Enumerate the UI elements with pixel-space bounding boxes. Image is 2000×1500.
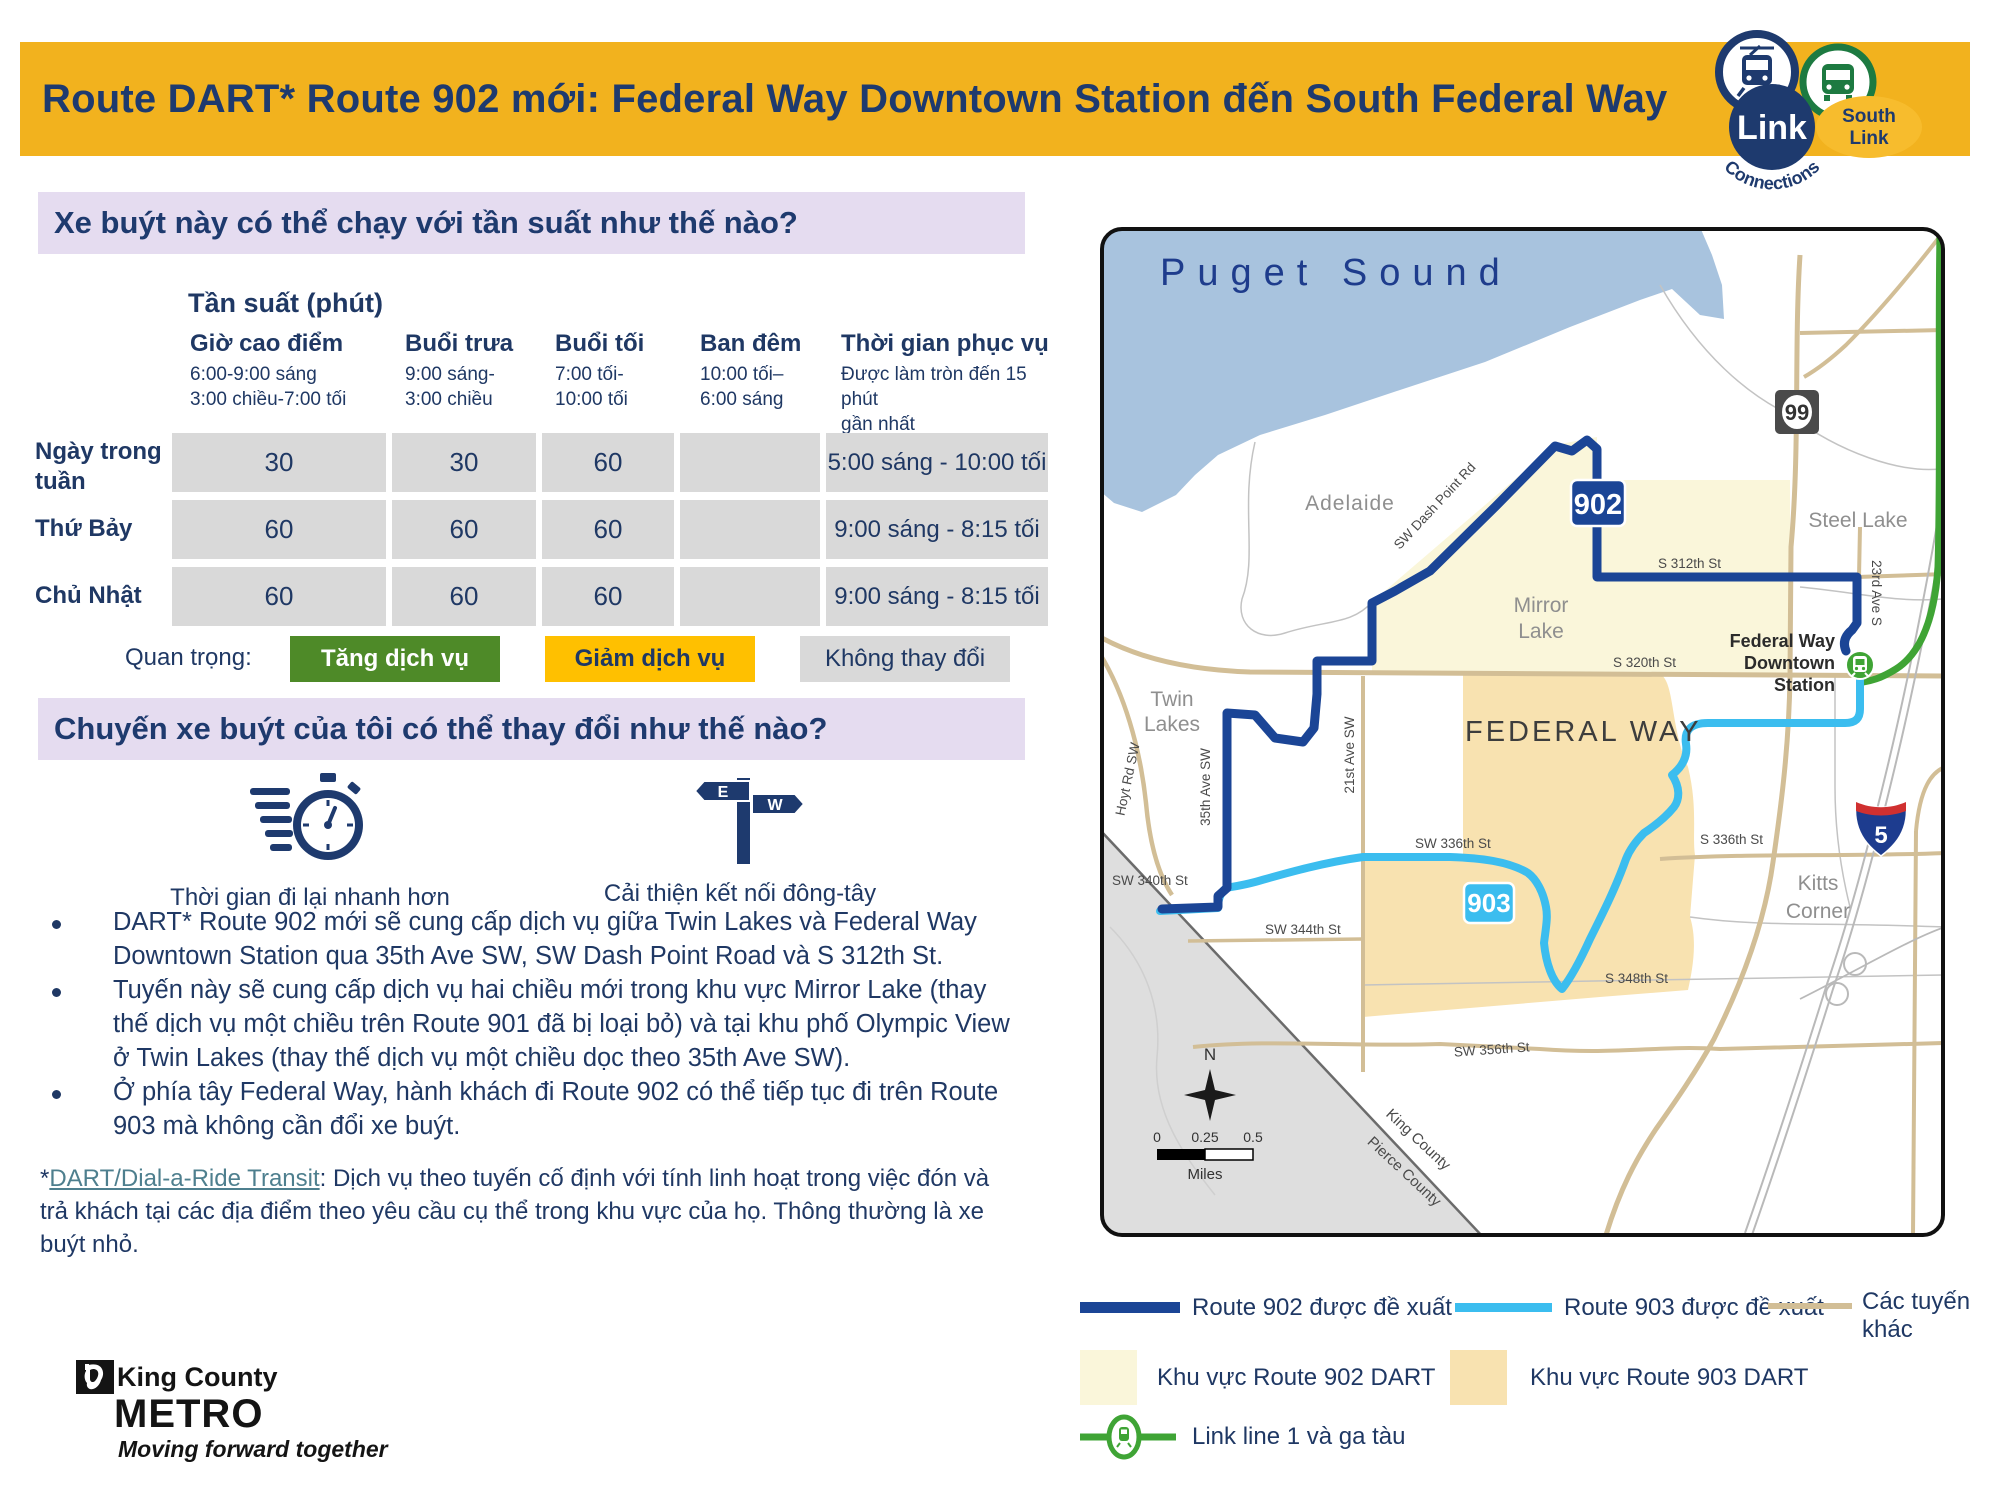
place-federal-way: FEDERAL WAY [1465, 716, 1702, 748]
bullet-item: Ở phía tây Federal Way, hành khách đi Ro… [113, 1075, 1018, 1143]
col-service-span: Thời gian phục vụ Được làm tròn đến 15 p… [841, 330, 1056, 437]
table-title: Tần suất (phút) [188, 288, 383, 319]
badge-service-increase: Tăng dịch vụ [290, 636, 500, 682]
svg-text:Station: Station [1774, 675, 1835, 695]
link-badge: Link [1729, 84, 1815, 170]
legend-other-routes-swatch [1768, 1303, 1852, 1309]
page-title: Route DART* Route 902 mới: Federal Way D… [20, 77, 1667, 122]
svg-text:35th Ave SW: 35th Ave SW [1198, 748, 1213, 826]
table-cell: 60 [542, 500, 674, 559]
svg-text:Lakes: Lakes [1144, 713, 1200, 736]
row-label-saturday: Thứ Bảy [35, 515, 185, 543]
badge-no-change: Không thay đổi [800, 636, 1010, 682]
stopwatch-icon [235, 770, 380, 870]
col-peak-sub: 6:00-9:00 sáng 3:00 chiều-7:00 tối [190, 362, 402, 412]
link-connections-logo: South Link Link Connections [1660, 8, 1980, 218]
col-midday: Buổi trưa 9:00 sáng- 3:00 chiều [405, 330, 550, 412]
bullet-dot [52, 920, 61, 929]
legend-route902-swatch [1080, 1302, 1180, 1313]
changes-section-heading: Chuyến xe buýt của tôi có thể thay đổi n… [38, 698, 1025, 760]
legend-other-routes-label: Các tuyến khác [1862, 1288, 2000, 1344]
svg-text:S 312th St: S 312th St [1658, 556, 1721, 571]
svg-text:SW 344th St: SW 344th St [1265, 922, 1341, 937]
frequency-section-heading: Xe buýt này có thể chạy với tần suất như… [38, 192, 1025, 254]
legend-dart902-label: Khu vực Route 902 DART [1157, 1364, 1435, 1392]
south-link-line2: Link [1849, 128, 1888, 149]
south-link-line1: South [1842, 106, 1896, 127]
svg-text:E: E [718, 784, 729, 801]
svg-text:0.25: 0.25 [1191, 1129, 1218, 1145]
svg-text:S 348th St: S 348th St [1605, 971, 1668, 986]
table-cell: 30 [172, 433, 386, 492]
dart-footnote: *DART/Dial-a-Ride Transit: Dịch vụ theo … [40, 1162, 1015, 1261]
table-cell: 30 [392, 433, 536, 492]
svg-text:0.5: 0.5 [1243, 1129, 1263, 1145]
svg-text:Corner: Corner [1786, 900, 1850, 923]
col-night-sub: 10:00 tối– 6:00 sáng [700, 362, 835, 412]
changes-heading-text: Chuyến xe buýt của tôi có thể thay đổi n… [38, 711, 827, 747]
col-evening: Buổi tối 7:00 tối- 10:00 tối [555, 330, 685, 412]
flyer-page: Route DART* Route 902 mới: Federal Way D… [0, 0, 2000, 1500]
sr99-shield: 99 [1775, 390, 1819, 434]
legend-link-station-icon [1078, 1408, 1178, 1466]
importance-label: Quan trọng: [125, 644, 252, 672]
table-cell: 60 [172, 500, 386, 559]
table-cell [680, 500, 820, 559]
route-902-badge: 902 [1571, 480, 1625, 526]
svg-text:23rd Ave S: 23rd Ave S [1869, 560, 1884, 626]
frequency-heading-text: Xe buýt này có thể chạy với tần suất như… [38, 205, 798, 241]
king-county-logo-icon [76, 1360, 114, 1394]
svg-text:N: N [1204, 1045, 1216, 1064]
svg-text:0: 0 [1153, 1129, 1161, 1145]
water-label: Puget Sound [1160, 252, 1512, 294]
svg-text:Miles: Miles [1187, 1166, 1222, 1183]
svg-text:Downtown: Downtown [1744, 653, 1835, 673]
col-peak: Giờ cao điểm 6:00-9:00 sáng 3:00 chiều-7… [190, 330, 402, 412]
table-cell: 9:00 sáng - 8:15 tối [826, 500, 1048, 559]
svg-text:Lake: Lake [1518, 620, 1564, 643]
table-cell: 5:00 sáng - 10:00 tối [826, 433, 1048, 492]
svg-text:99: 99 [1785, 400, 1809, 425]
legend-dart903-label: Khu vực Route 903 DART [1530, 1364, 1808, 1392]
bullet-dot [52, 1090, 61, 1099]
col-peak-label: Giờ cao điểm [190, 330, 402, 358]
legend-dart902-swatch [1080, 1350, 1137, 1405]
route-903-badge: 903 [1464, 883, 1514, 923]
svg-text:903: 903 [1467, 888, 1510, 918]
row-label-sunday: Chủ Nhật [35, 582, 185, 610]
svg-text:21st Ave SW: 21st Ave SW [1342, 716, 1357, 793]
table-cell: 60 [392, 500, 536, 559]
bullet-item: Tuyến này sẽ cung cấp dịch vụ hai chiều … [113, 973, 1018, 1075]
bullet-dot [52, 988, 61, 997]
table-cell: 60 [172, 567, 386, 626]
col-night-label: Ban đêm [700, 330, 835, 358]
benefit-eastwest-label: Cải thiện kết nối đông-tây [540, 880, 940, 908]
route-map: Puget Sound Adelaide Twin Lakes Mirror L… [1100, 227, 1945, 1237]
row-label-weekday: Ngày trong tuần [35, 437, 165, 497]
table-cell [680, 567, 820, 626]
link-station-icon [1846, 651, 1874, 679]
metro-logo-name: King County [117, 1362, 277, 1393]
legend-dart903-swatch [1450, 1350, 1507, 1405]
place-twin-lakes: Twin [1150, 688, 1193, 711]
dart-definition-link[interactable]: DART/Dial-a-Ride Transit [49, 1165, 319, 1192]
badge-service-decrease: Giảm dịch vụ [545, 636, 755, 682]
svg-text:5: 5 [1874, 822, 1887, 849]
metro-logo-metro: METRO [114, 1392, 263, 1437]
col-midday-sub: 9:00 sáng- 3:00 chiều [405, 362, 550, 412]
svg-text:SW 336th St: SW 336th St [1415, 836, 1491, 851]
metro-logo-tagline: Moving forward together [118, 1436, 388, 1463]
col-service-sub: Được làm tròn đến 15 phút gần nhất [841, 362, 1056, 437]
place-adelaide: Adelaide [1305, 492, 1395, 515]
table-cell: 9:00 sáng - 8:15 tối [826, 567, 1048, 626]
col-evening-sub: 7:00 tối- 10:00 tối [555, 362, 685, 412]
svg-text:SW 340th St: SW 340th St [1112, 873, 1188, 888]
bullet-item: DART* Route 902 mới sẽ cung cấp dịch vụ … [113, 905, 1018, 973]
place-steel-lake: Steel Lake [1808, 509, 1907, 532]
south-link-badge: South Link [1816, 96, 1922, 158]
svg-text:S 336th St: S 336th St [1700, 832, 1763, 847]
svg-text:W: W [767, 797, 783, 814]
place-mirror-lake: Mirror [1514, 594, 1569, 617]
col-evening-label: Buổi tối [555, 330, 685, 358]
svg-text:902: 902 [1574, 489, 1622, 521]
svg-text:S 320th St: S 320th St [1613, 655, 1676, 670]
station-label: Federal Way [1730, 631, 1835, 651]
col-midday-label: Buổi trưa [405, 330, 550, 358]
link-label: Link [1737, 109, 1807, 147]
table-cell [680, 433, 820, 492]
east-west-sign-icon: E W [695, 772, 805, 867]
table-cell: 60 [542, 433, 674, 492]
footnote-star: * [40, 1165, 49, 1192]
legend-link-label: Link line 1 và ga tàu [1192, 1423, 1405, 1451]
legend-route903-swatch [1455, 1303, 1552, 1312]
col-night: Ban đêm 10:00 tối– 6:00 sáng [700, 330, 835, 412]
table-cell: 60 [392, 567, 536, 626]
table-cell: 60 [542, 567, 674, 626]
place-kitts-corner: Kitts [1798, 872, 1839, 895]
col-service-label: Thời gian phục vụ [841, 330, 1056, 358]
legend-route902-label: Route 902 được đề xuất [1192, 1294, 1452, 1322]
